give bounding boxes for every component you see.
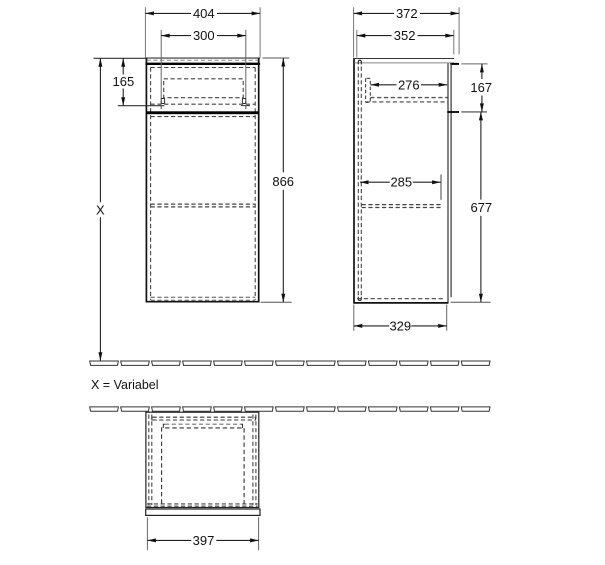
svg-text:352: 352 [394, 28, 416, 43]
svg-text:372: 372 [396, 6, 418, 21]
svg-text:X = Variabel: X = Variabel [91, 378, 159, 392]
svg-text:276: 276 [398, 77, 420, 92]
svg-text:329: 329 [389, 318, 411, 333]
svg-text:165: 165 [113, 74, 135, 89]
svg-text:677: 677 [470, 200, 492, 215]
svg-text:300: 300 [193, 28, 215, 43]
svg-text:X: X [96, 202, 105, 217]
svg-text:397: 397 [193, 533, 215, 548]
svg-text:404: 404 [193, 6, 215, 21]
svg-text:167: 167 [470, 80, 492, 95]
svg-text:866: 866 [272, 174, 294, 189]
svg-text:285: 285 [390, 175, 412, 190]
